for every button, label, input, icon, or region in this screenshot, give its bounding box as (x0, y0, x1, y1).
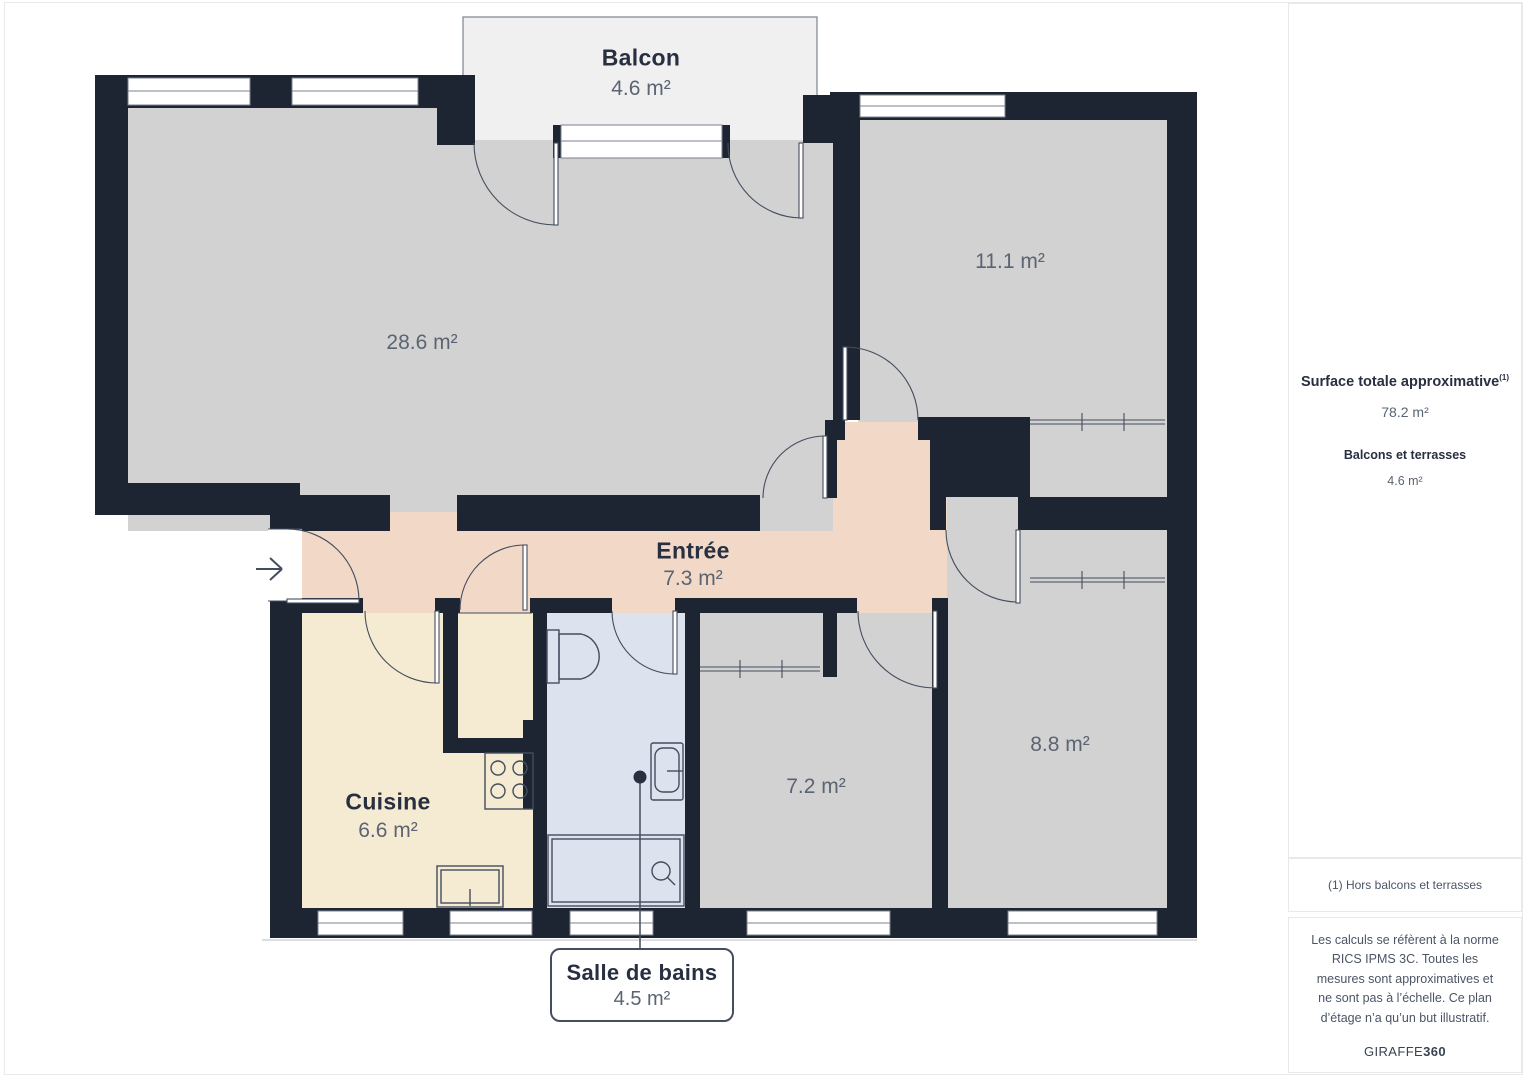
room-name-balcon: Balcon (602, 45, 680, 72)
room-name-salle-de-bains: Salle de bains (567, 960, 718, 986)
room-area-entree: 7.3 m² (663, 567, 723, 591)
bathroom-callout: Salle de bains 4.5 m² (550, 948, 734, 1022)
room-area-sejour: 28.6 m² (386, 331, 457, 355)
measurements-sidebar: Surface totale approximative(1) 78.2 m² … (1288, 0, 1522, 1080)
room-name-cuisine: Cuisine (345, 789, 430, 816)
footnote-text: (1) Hors balcons et terrasses (1328, 878, 1482, 892)
room-area-salle-de-bains: 4.5 m² (614, 988, 671, 1011)
entrance-opening (268, 529, 302, 601)
brand-logo: GIRAFFE360 (1364, 1044, 1446, 1059)
footnote-card: (1) Hors balcons et terrasses (1288, 858, 1522, 912)
room-area-chambre-droite: 8.8 m² (1030, 733, 1090, 757)
brand-name: GIRAFFE (1364, 1044, 1423, 1059)
balcony-surface-value: 4.6 m² (1387, 474, 1422, 488)
room-area-cuisine: 6.6 m² (358, 819, 418, 843)
room-area-chambre-bas: 7.2 m² (786, 775, 846, 799)
disclaimer-text: Les calculs se réfèrent à la norme RICS … (1289, 931, 1521, 1028)
balcony-surface-label: Balcons et terrasses (1344, 448, 1466, 462)
disclaimer-card: Les calculs se réfèrent à la norme RICS … (1288, 917, 1522, 1073)
brand-number: 360 (1423, 1044, 1446, 1059)
room-area-chambre-haut: 11.1 m² (975, 250, 1045, 274)
footnote-mark: (1) (1499, 373, 1509, 382)
page: Balcon 4.6 m² 28.6 m² 11.1 m² Entrée 7.3… (0, 0, 1527, 1080)
floor-plan-svg (0, 0, 1285, 1080)
floor-plan: Balcon 4.6 m² 28.6 m² 11.1 m² Entrée 7.3… (0, 0, 1285, 1080)
total-surface-label: Surface totale approximative(1) (1301, 373, 1509, 390)
surface-summary-card: Surface totale approximative(1) 78.2 m² … (1288, 3, 1522, 858)
room-name-entree: Entrée (656, 538, 729, 565)
total-surface-text: Surface totale approximative (1301, 374, 1499, 390)
room-area-balcon: 4.6 m² (611, 77, 671, 101)
total-surface-value: 78.2 m² (1381, 404, 1428, 420)
